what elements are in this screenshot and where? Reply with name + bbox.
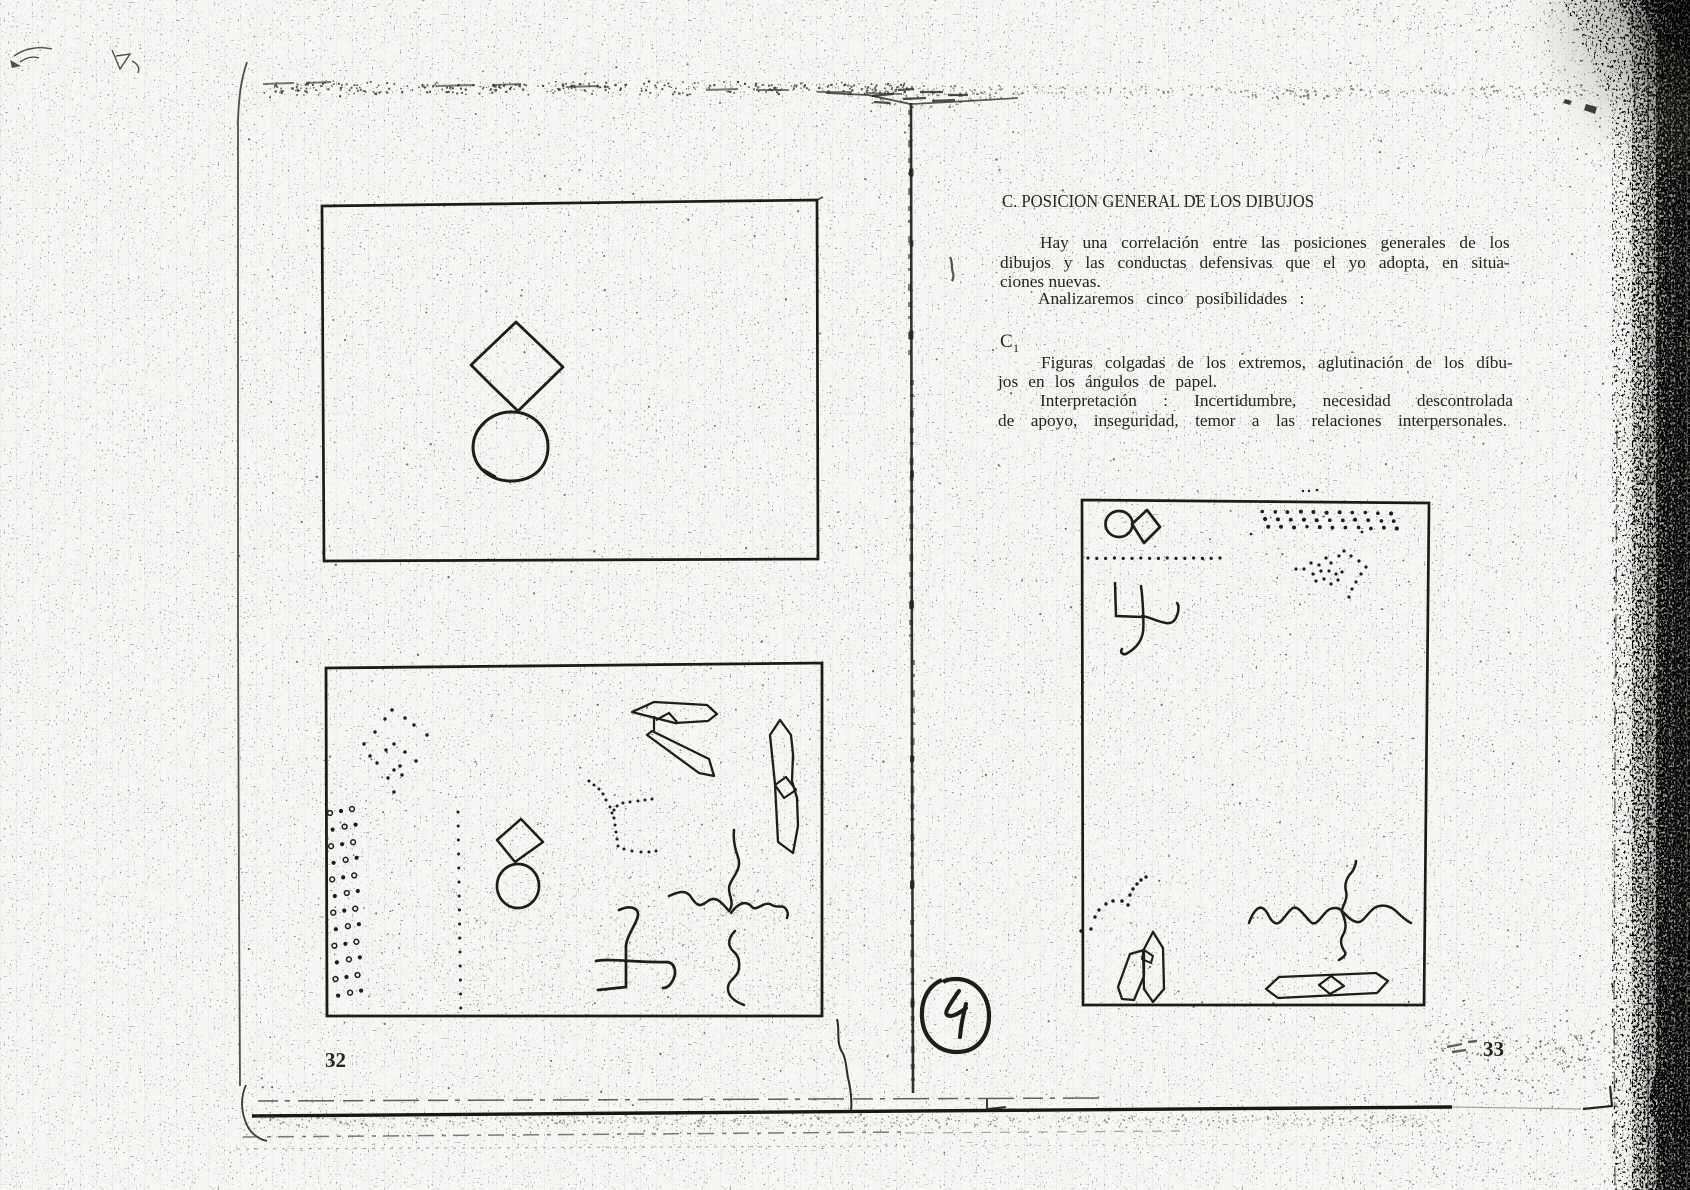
- svg-text:32: 32: [325, 1048, 346, 1072]
- svg-text:de apoyo, inseguridad, temor a: de apoyo, inseguridad, temor a las relac…: [998, 411, 1507, 430]
- svg-text:Hay una correlación entre las: Hay una correlación entre las posiciones…: [1040, 233, 1510, 252]
- svg-text:C: C: [1000, 331, 1013, 352]
- svg-text:Figuras colgadas de los extrem: Figuras colgadas de los extremos, agluti…: [1041, 353, 1513, 372]
- svg-text:dibujos y las conductas defens: dibujos y las conductas defensivas que e…: [1000, 253, 1510, 272]
- svg-text:jos en los ángulos de papel.: jos en los ángulos de papel.: [997, 372, 1217, 391]
- svg-text:33: 33: [1483, 1037, 1504, 1061]
- svg-text:Analizaremos cinco posibilidad: Analizaremos cinco posibilidades :: [1038, 289, 1304, 308]
- svg-text:1: 1: [1013, 341, 1019, 355]
- svg-text:C. POSICION GENERAL DE LOS DIB: C. POSICION GENERAL DE LOS DIBUJOS: [1002, 191, 1314, 211]
- svg-text:Interpretación : Incertidumbre: Interpretación : Incertidumbre, necesida…: [1040, 391, 1513, 410]
